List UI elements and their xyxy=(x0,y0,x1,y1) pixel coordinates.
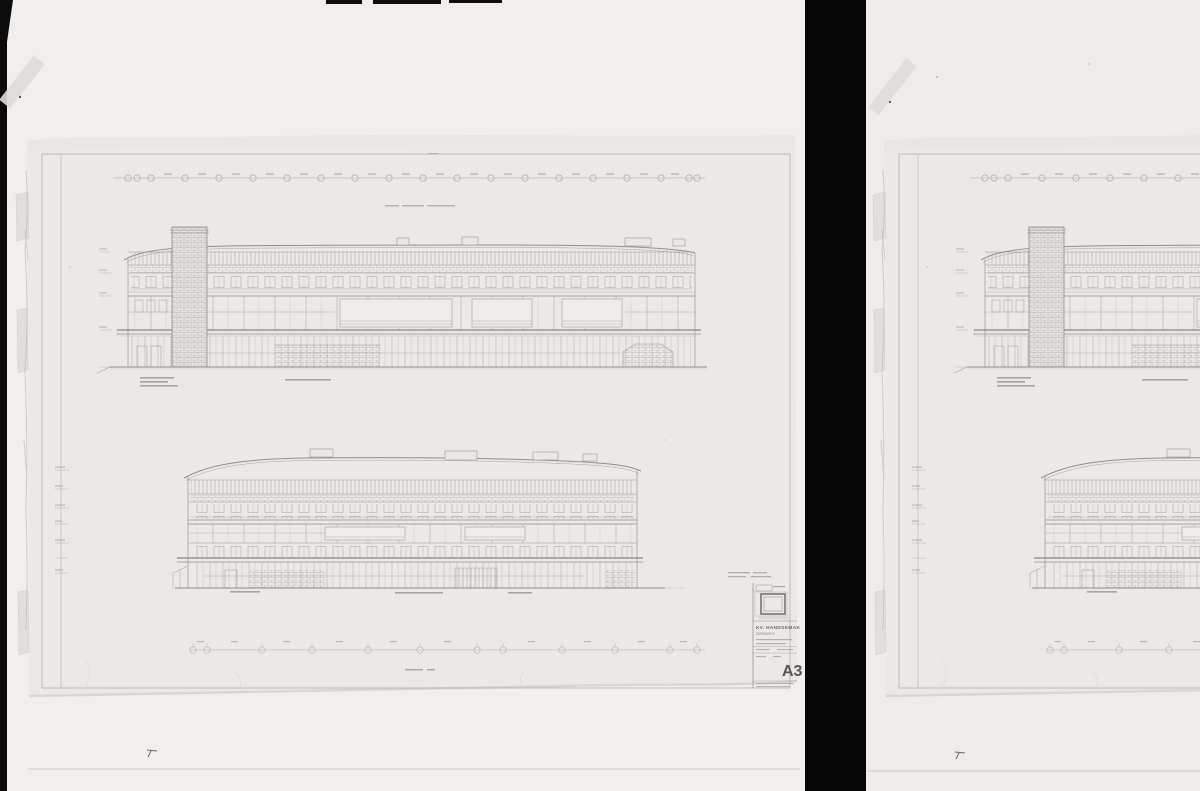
sheet-paper xyxy=(27,145,797,696)
brick-band xyxy=(128,265,695,273)
city-text: ÖREBRO xyxy=(756,632,775,636)
annotation-text-illegible xyxy=(428,153,438,154)
drawing-title-illegible xyxy=(385,205,455,206)
drawing-sheet: KV. HANDSKMAK ÖREBRO A3 xyxy=(16,135,803,696)
clerestory-band xyxy=(128,252,695,265)
chimney-tower xyxy=(170,227,209,367)
clerestory-band xyxy=(188,480,637,494)
film-edge-left xyxy=(0,0,7,791)
film-gutter xyxy=(805,0,866,791)
ground-floor xyxy=(131,336,691,367)
window-band-mid xyxy=(188,524,637,543)
project-name-text: KV. HANDSKMAK xyxy=(756,625,800,631)
annotation-text-illegible xyxy=(405,669,435,670)
sheet-number-text: A3 xyxy=(782,663,803,680)
window-band-lower xyxy=(191,544,634,557)
ground-floor xyxy=(173,562,635,588)
scan-canvas: KV. HANDSKMAK ÖREBRO A3 xyxy=(0,0,1200,791)
film-scan-collage: KV. HANDSKMAK ÖREBRO A3 xyxy=(0,0,1200,791)
drawing-sheet-right-instance xyxy=(873,135,1200,696)
brick-band xyxy=(188,494,637,502)
window-band-lower xyxy=(128,296,695,330)
